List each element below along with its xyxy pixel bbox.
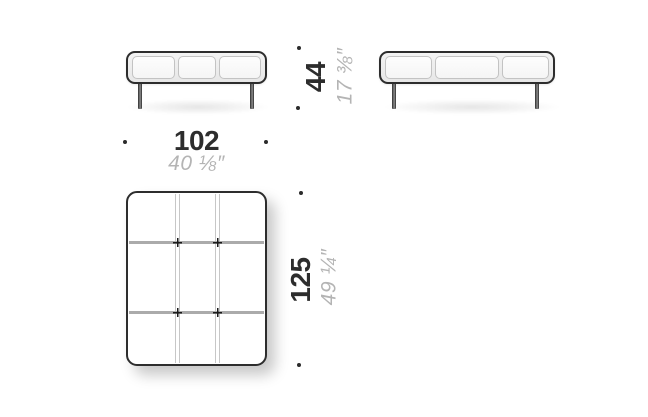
front-cushion-right — [219, 56, 261, 79]
height-value-inches: 17 ⅜″ — [335, 48, 356, 105]
front-cushion-middle — [178, 56, 216, 79]
front-cushion-left — [132, 56, 175, 79]
side-leg-left — [392, 83, 396, 109]
tuft-plus-icon — [173, 308, 182, 317]
dimension-diagram: 44 17 ⅜″ 102 40 ⅛″ 125 49 ¼″ — [0, 0, 648, 417]
depth-value-cm: 125 — [287, 257, 315, 302]
top-view — [126, 191, 267, 366]
front-leg-right — [250, 83, 254, 109]
top-view-seam-horizontal-lower — [129, 311, 264, 314]
tuft-plus-icon — [213, 238, 222, 247]
top-view-seam-vertical-left — [175, 194, 180, 363]
side-leg-right — [535, 83, 539, 109]
tuft-plus-icon — [173, 238, 182, 247]
width-value-inches: 40 ⅛″ — [126, 153, 267, 174]
side-cushion-front — [385, 56, 432, 79]
width-value-cm: 102 — [126, 127, 267, 155]
depth-value-inches: 49 ¼″ — [319, 249, 340, 306]
top-view-seam-vertical-right — [215, 194, 220, 363]
front-body — [126, 51, 267, 84]
depth-dim-dot-bottom — [297, 363, 301, 367]
side-cushion-back — [502, 56, 549, 79]
height-value-cm: 44 — [302, 62, 330, 92]
tuft-plus-icon — [213, 308, 222, 317]
height-dim-dot-bottom — [296, 106, 300, 110]
side-body — [379, 51, 555, 84]
depth-dim-dot-top — [299, 191, 303, 195]
height-dim-dot-top — [297, 46, 301, 50]
top-view-seam-horizontal-upper — [129, 241, 264, 244]
side-cushion-middle — [435, 56, 499, 79]
front-leg-left — [138, 83, 142, 109]
